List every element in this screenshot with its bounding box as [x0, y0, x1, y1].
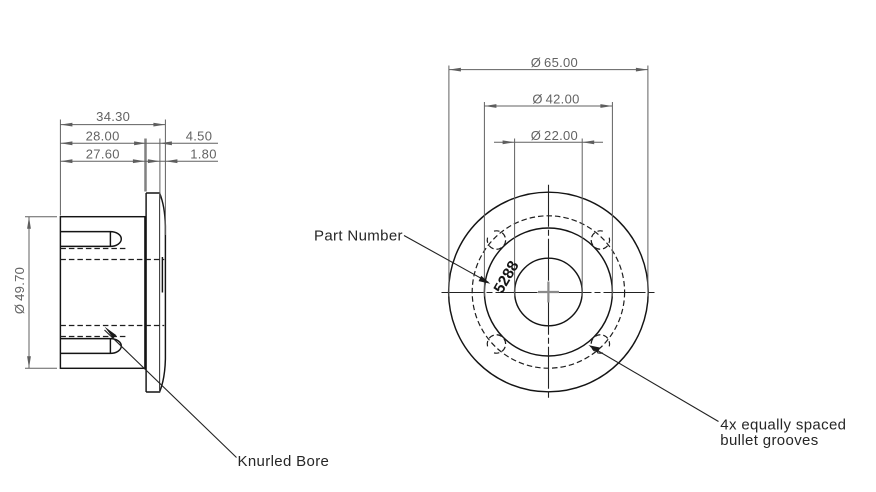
svg-text:Ø 65.00: Ø 65.00: [531, 55, 578, 70]
svg-text:4.50: 4.50: [186, 129, 213, 144]
svg-text:1.80: 1.80: [190, 146, 217, 161]
svg-text:Ø 42.00: Ø 42.00: [532, 92, 579, 107]
svg-text:Ø 49.70: Ø 49.70: [12, 267, 27, 314]
svg-text:34.30: 34.30: [96, 109, 130, 124]
svg-text:27.60: 27.60: [86, 146, 120, 161]
svg-text:bullet grooves: bullet grooves: [720, 432, 818, 449]
svg-text:28.00: 28.00: [86, 129, 120, 144]
svg-text:Knurled Bore: Knurled Bore: [238, 453, 330, 470]
svg-text:Part Number: Part Number: [314, 227, 403, 244]
svg-text:Ø 22.00: Ø 22.00: [531, 128, 578, 143]
